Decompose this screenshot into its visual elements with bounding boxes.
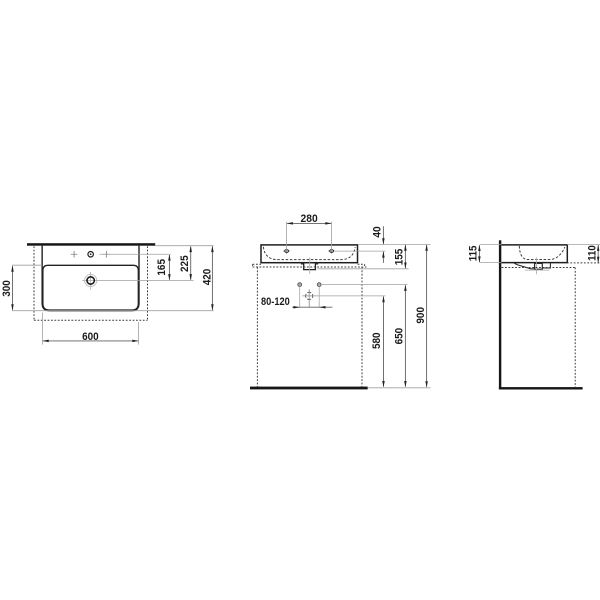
- svg-text:280: 280: [301, 213, 318, 225]
- svg-text:580: 580: [371, 332, 383, 349]
- svg-text:165: 165: [156, 259, 168, 276]
- svg-text:110: 110: [587, 245, 599, 261]
- svg-text:80-120: 80-120: [261, 296, 290, 308]
- svg-text:420: 420: [201, 269, 213, 286]
- svg-text:40: 40: [372, 226, 384, 237]
- svg-text:155: 155: [394, 249, 406, 266]
- svg-text:225: 225: [179, 255, 191, 272]
- svg-text:115: 115: [467, 246, 479, 262]
- svg-text:600: 600: [82, 331, 99, 343]
- svg-text:300: 300: [1, 280, 13, 297]
- svg-text:650: 650: [394, 328, 406, 345]
- svg-text:900: 900: [415, 307, 427, 324]
